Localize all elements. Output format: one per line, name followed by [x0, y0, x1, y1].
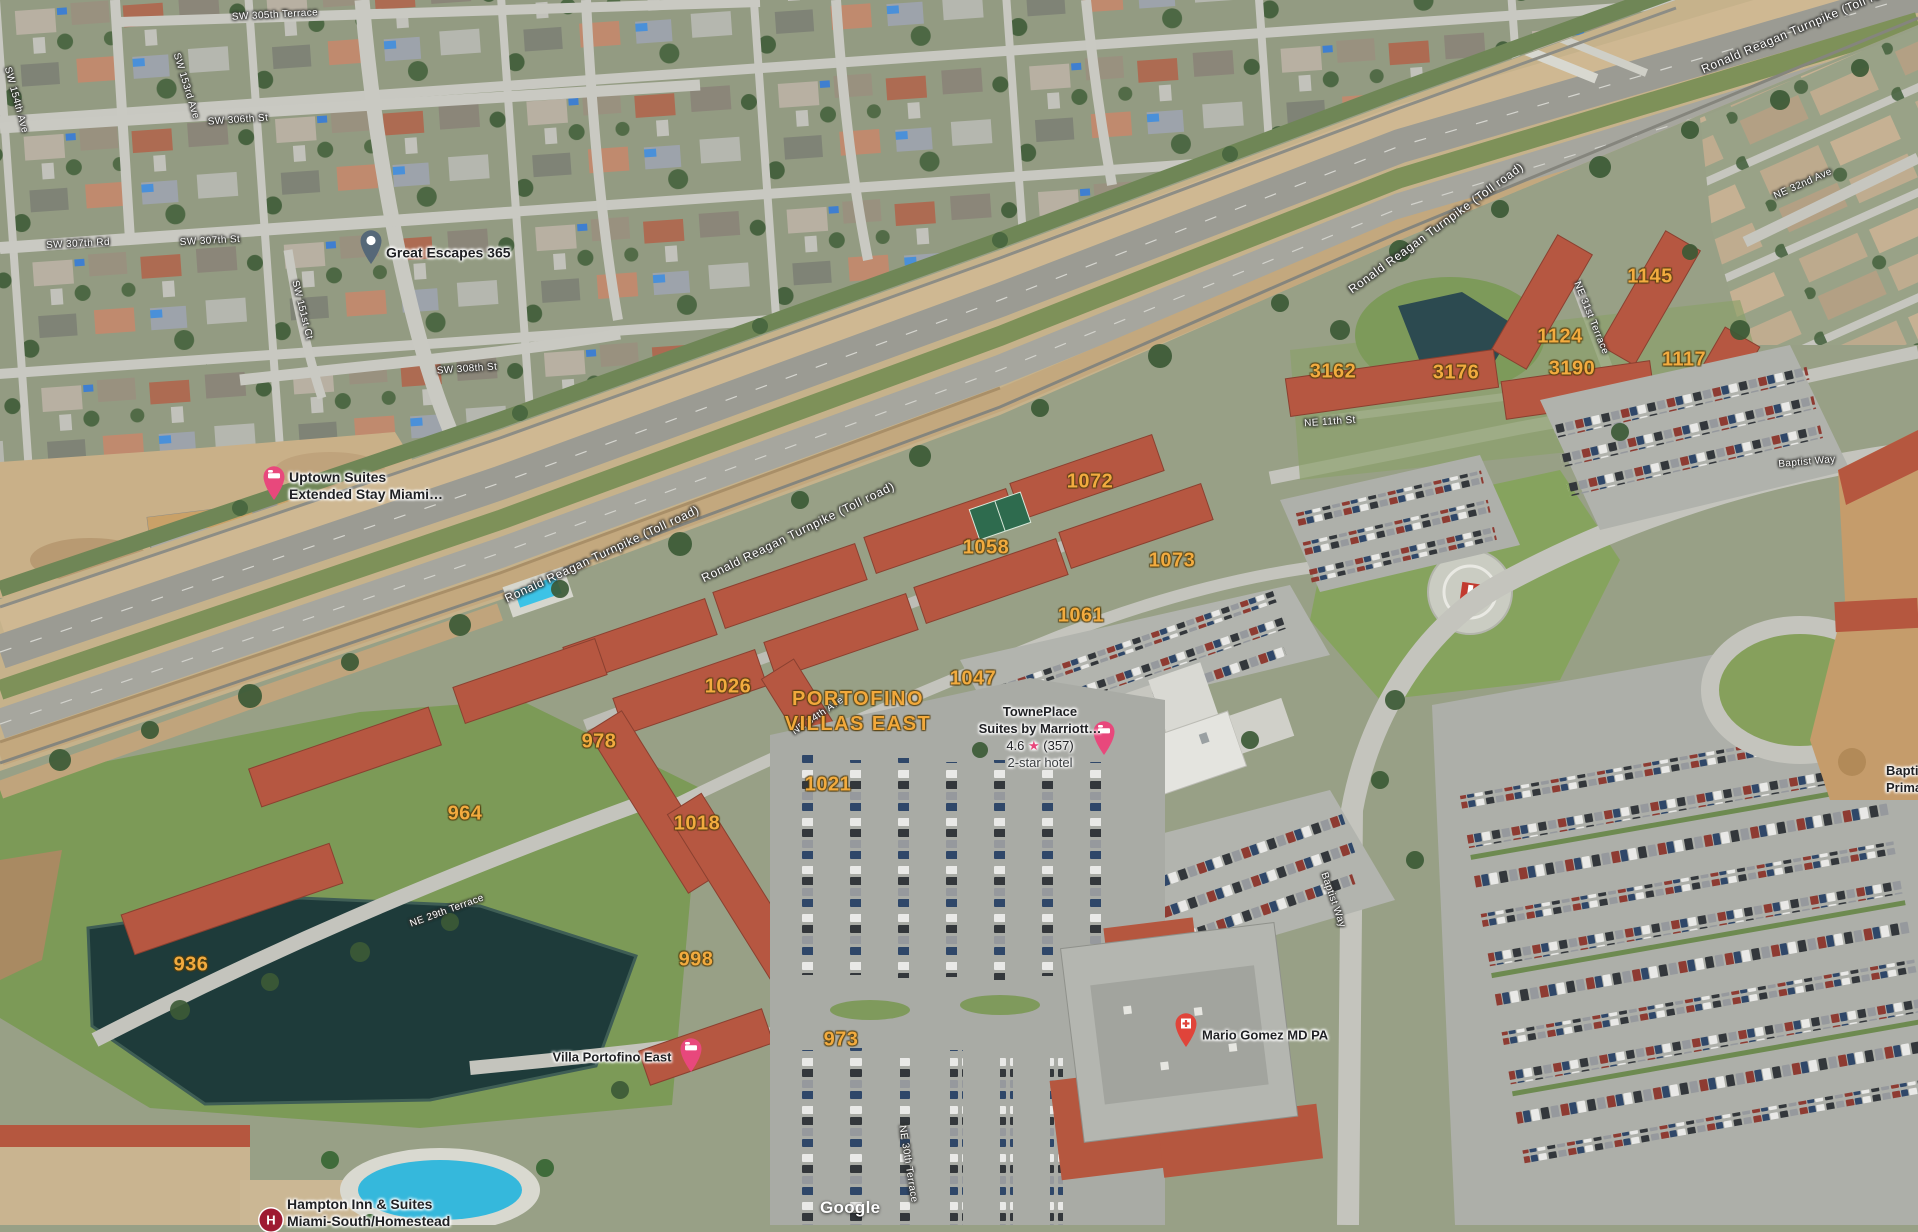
poi-name-line2: Extended Stay Miami… [289, 486, 443, 503]
poi-uptown-suites[interactable]: Uptown Suites Extended Stay Miami… [289, 469, 443, 503]
address-number: 998 [679, 949, 714, 972]
street-label: Baptist Way [1778, 454, 1836, 470]
poi-name: Mario Gomez MD PA [1202, 1028, 1328, 1043]
hotel-pin-icon[interactable] [259, 462, 289, 502]
address-number: 3190 [1549, 358, 1596, 381]
area-label-portofino-villas-east[interactable]: PORTOFINO VILLAS EAST [785, 687, 932, 737]
review-count: (357) [1043, 738, 1073, 753]
poi-name-line2: Suites by Marriott… [979, 720, 1102, 737]
doctor-pin-icon[interactable] [1171, 1009, 1201, 1049]
address-number: 964 [448, 803, 483, 826]
street-label-turnpike: Ronald Reagan Turnpike (Toll road) [502, 503, 701, 606]
poi-name: Great Escapes 365 [386, 245, 511, 261]
address-number: 3162 [1310, 361, 1357, 384]
poi-name: Villa Portofino East [553, 1050, 672, 1065]
street-label: NE 32nd Ave [1772, 166, 1834, 202]
street-label: NE 29th Terrace [408, 892, 485, 929]
address-number: 1145 [1627, 266, 1672, 289]
street-label: SW 153rd Ave [171, 52, 202, 121]
star-icon: ★ [1028, 738, 1040, 753]
address-number: 1072 [1067, 471, 1114, 494]
address-number: 1117 [1662, 349, 1706, 372]
poi-name-line2: Miami-South/Homestead [287, 1213, 450, 1230]
address-number: 1073 [1149, 550, 1196, 573]
street-label: NE 30th Terrace [896, 1125, 919, 1204]
street-label: SW 306th St [207, 112, 268, 127]
area-label-line1: PORTOFINO [785, 687, 932, 712]
address-number: 3176 [1433, 362, 1480, 385]
poi-category: 2-star hotel [979, 754, 1102, 771]
street-label: SW 308th St [436, 361, 497, 376]
poi-name-line1: Baptist [1886, 762, 1918, 779]
address-number: 973 [824, 1029, 859, 1052]
street-label-turnpike: Ronald Reagan Turnpike (Toll road) [699, 479, 897, 585]
address-number: 1026 [705, 676, 752, 699]
poi-name-line1: TownePlace [979, 703, 1102, 720]
address-number: 1018 [674, 813, 721, 836]
address-number: 1021 [805, 774, 852, 797]
poi-name-line1: Hampton Inn & Suites [287, 1196, 450, 1213]
google-maps-satellite-view: { "watermark": "Google", "area": { "line… [0, 0, 1918, 1225]
poi-name-line1: Uptown Suites [289, 469, 443, 486]
place-pin-icon[interactable] [356, 226, 386, 266]
street-label: SW 307th St [179, 234, 240, 248]
address-number: 1124 [1537, 326, 1582, 349]
street-label: NE 11th St [1304, 415, 1356, 430]
street-label-turnpike: Ronald Reagan Turnpike (Toll road) [1346, 160, 1527, 297]
poi-name-line2: Primary [1886, 779, 1918, 796]
poi-towneplace-suites[interactable]: TownePlace Suites by Marriott… 4.6 ★ (35… [979, 703, 1102, 771]
street-label: SW 151st Ct [289, 279, 314, 340]
poi-villa-portofino-east[interactable]: Villa Portofino East [553, 1049, 672, 1066]
street-label: SW 305th Terrace [232, 7, 319, 22]
area-label-line2: VILLAS EAST [785, 712, 932, 737]
poi-great-escapes[interactable]: Great Escapes 365 [386, 245, 511, 262]
street-label: Baptist Way [1318, 871, 1347, 929]
address-number: 1047 [950, 668, 997, 691]
street-label-turnpike: Ronald Reagan Turnpike (Toll road) [1699, 0, 1901, 76]
address-number: 1061 [1058, 605, 1105, 628]
poi-baptist-primary[interactable]: Baptist Primary [1886, 762, 1918, 796]
map-label-layer: SW 305th Terrace SW 153rd Ave SW 306th S… [0, 0, 1918, 1225]
address-number: 978 [582, 731, 617, 754]
street-label: SW 154th Ave [2, 66, 30, 135]
google-watermark: Google [820, 1198, 880, 1218]
address-number: 936 [174, 954, 209, 977]
rating-value: 4.6 [1006, 738, 1024, 753]
address-number: 1058 [963, 537, 1010, 560]
street-label: SW 307th Rd [46, 237, 110, 251]
poi-mario-gomez[interactable]: Mario Gomez MD PA [1202, 1027, 1328, 1044]
hampton-logo-icon[interactable]: H [260, 1209, 283, 1232]
poi-rating-row: 4.6 ★ (357) [979, 737, 1102, 754]
hotel-pin-icon[interactable] [676, 1034, 706, 1074]
